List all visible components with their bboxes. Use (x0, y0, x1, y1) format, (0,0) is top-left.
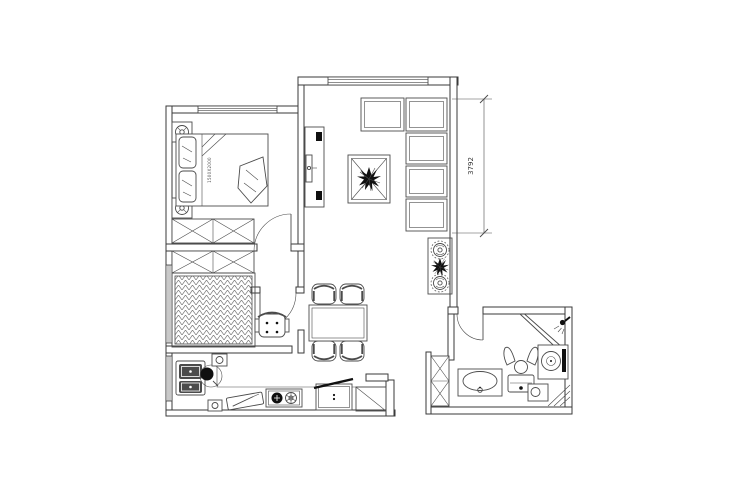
bedroom-bottom-wall (166, 244, 257, 251)
bedroom-window (198, 106, 277, 113)
faucet-icon (200, 365, 222, 387)
kitchen-window (166, 356, 172, 401)
fridge (314, 379, 353, 410)
right-exterior-wall (450, 77, 457, 314)
living-room (305, 98, 447, 231)
bath-niche-wall (426, 352, 431, 414)
floor-plan-drawing: 1500X2000 (0, 0, 740, 500)
tv-icon (306, 155, 312, 182)
bedroom: 1500X2000 (172, 122, 291, 251)
dining-chair (312, 284, 336, 304)
coffee-table (348, 155, 390, 203)
kitchen (176, 353, 386, 411)
sectional-sofa (361, 98, 447, 231)
desk-chair (255, 313, 289, 338)
plant-icon (357, 167, 381, 191)
pillow (179, 137, 196, 168)
bedroom-door-jamb (291, 244, 304, 251)
control-panel (562, 349, 566, 372)
dimension-annotation: 3792 (452, 95, 492, 237)
hall-wall-stub-right (296, 287, 304, 293)
study-wardrobe (172, 251, 254, 273)
living-window (328, 77, 428, 85)
bath-storage-cabinet (431, 356, 449, 406)
pillow (179, 171, 196, 202)
bedroom-door (254, 214, 291, 251)
bath-top-wall-right (483, 307, 572, 314)
study-room (172, 251, 296, 347)
plant-icon (431, 258, 449, 276)
corner-cabinet (356, 387, 386, 411)
dining-area (309, 284, 367, 361)
bath-left-wall (448, 314, 454, 360)
kitchen-right-wall (386, 380, 394, 416)
flower-pot-icon (431, 241, 449, 259)
dimension-value: 3792 (467, 157, 475, 175)
dining-chair (312, 341, 336, 361)
tv-cabinet (305, 127, 324, 207)
flower-pot-icon (431, 274, 449, 292)
dining-chair (340, 284, 364, 304)
tv-divider-wall (298, 85, 304, 293)
drain-box-bottom (208, 400, 222, 411)
plant-rack (428, 238, 452, 294)
floor-drain-unit (528, 384, 548, 401)
speaker (316, 191, 322, 200)
gas-stove (266, 389, 302, 407)
double-bed: 1500X2000 (176, 134, 268, 206)
bedroom-wardrobe (172, 219, 254, 243)
bath-top-wall-left (448, 307, 458, 314)
kitchen-sink (176, 361, 205, 395)
bath-bottom-wall (426, 407, 572, 414)
kitchen-wall-notch (366, 374, 388, 381)
cutting-board (226, 392, 264, 410)
floor-plan-canvas: 1500X2000 (0, 0, 740, 500)
washing-machine (538, 345, 568, 379)
dining-table (309, 305, 367, 341)
tatami-platform (172, 273, 255, 347)
vanity-sink (458, 369, 502, 396)
kitchen-entry-jamb (298, 330, 304, 353)
drain-box-top (212, 354, 227, 366)
speaker (316, 132, 322, 141)
bed-size-label: 1500X2000 (207, 157, 212, 183)
dining-chair (340, 341, 364, 361)
study-window (166, 265, 172, 343)
bathroom-door (457, 314, 483, 340)
